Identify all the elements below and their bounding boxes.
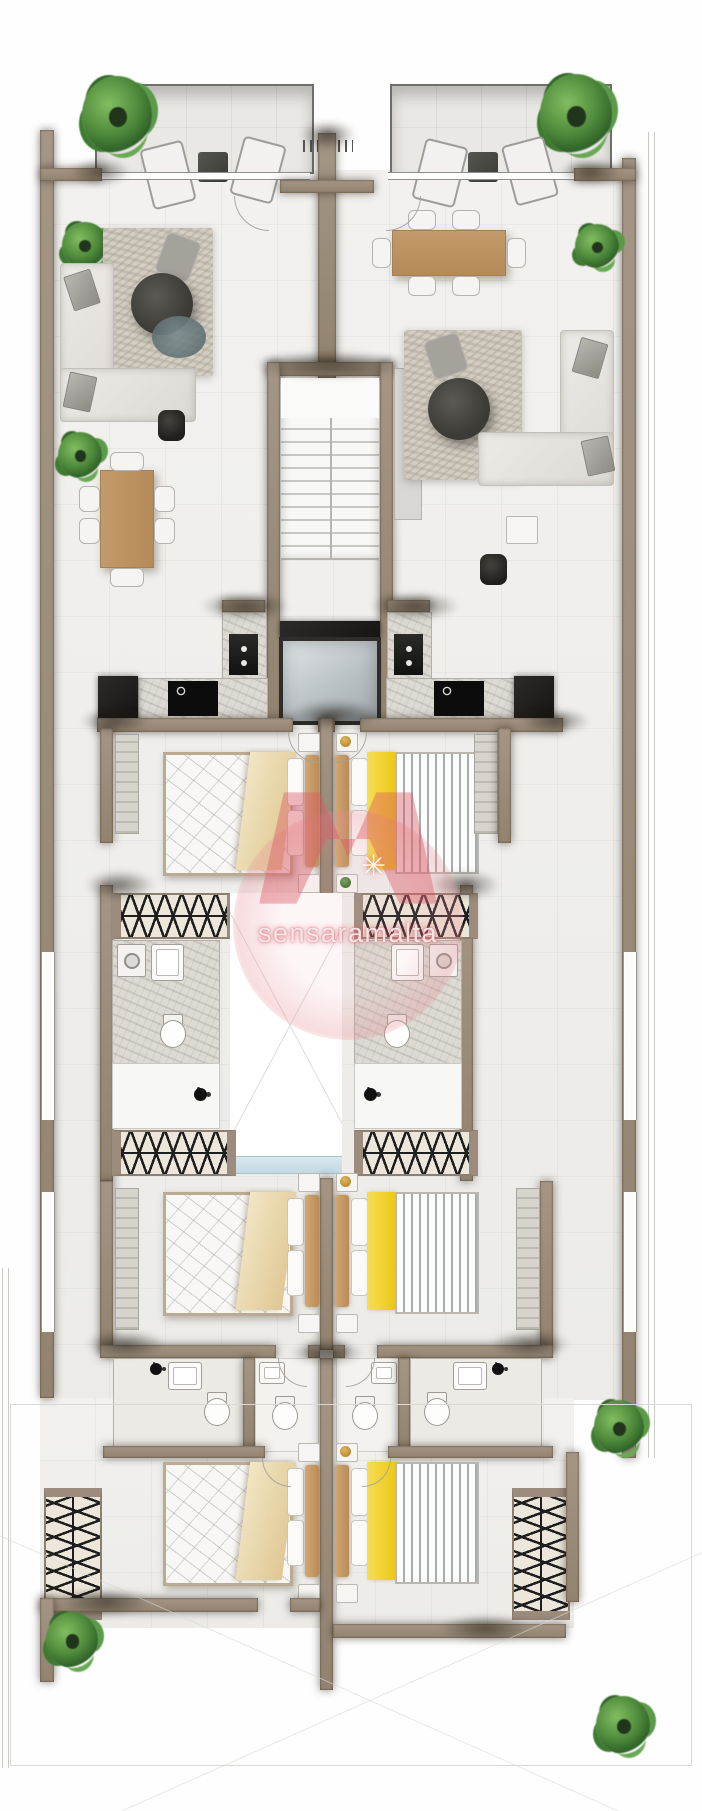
- wardrobe-rail-right-a: [354, 893, 478, 939]
- floor-lamp-icon: [480, 554, 507, 585]
- skylight-glass: [230, 1156, 342, 1174]
- toilet-bowl: [160, 1020, 186, 1048]
- kitchen-sink-icon: [229, 634, 258, 675]
- core-wall-vertical: [318, 133, 336, 378]
- core-wall-cross: [280, 180, 374, 193]
- dining-chair-icon: [110, 568, 144, 587]
- floor-plan-page: ✳ sensaramalta: [0, 0, 702, 1811]
- sliding-glass-door-right: [388, 172, 574, 180]
- toilet-icon: [384, 1014, 410, 1050]
- dining-chair-icon: [154, 486, 175, 512]
- plot-line-left: [2, 1268, 9, 1768]
- stair-wall-top: [267, 362, 393, 376]
- elevator: [279, 637, 381, 725]
- dining-chair-icon: [372, 238, 391, 268]
- stair-landing: [281, 378, 379, 418]
- bed-left-2: [163, 1192, 320, 1310]
- pillow: [287, 810, 304, 856]
- shower-head-icon: [194, 1088, 207, 1101]
- kitchen-back-wall-left: [97, 718, 293, 732]
- dining-chair-icon: [110, 452, 144, 471]
- dining-chair-icon: [452, 276, 480, 296]
- washbasin-icon: [151, 944, 184, 981]
- elevator-door-wall: [280, 621, 380, 637]
- dining-table-left: [100, 470, 154, 568]
- bedroom1-wall-right: [498, 728, 511, 843]
- window-right-2: [623, 1192, 637, 1332]
- headboard: [305, 1195, 319, 1307]
- plant-icon: [575, 224, 619, 268]
- dining-chair-icon: [79, 486, 100, 512]
- washbasin-icon: [453, 1362, 487, 1390]
- dining-chair-icon: [79, 518, 100, 544]
- pillow: [351, 1198, 368, 1246]
- wardrobe-strip-left: [115, 734, 139, 834]
- nightstand-icon: [298, 874, 320, 893]
- shower-head-icon: [492, 1363, 504, 1375]
- washing-machine-icon: [429, 944, 458, 977]
- nightstand-icon: [336, 1314, 358, 1333]
- bedroom1-wall-left: [100, 728, 113, 843]
- toilet-icon: [160, 1014, 186, 1050]
- window-left-2: [41, 1192, 55, 1332]
- bed-right-1: [334, 752, 491, 870]
- dining-chair-icon: [507, 238, 526, 268]
- fridge-icon: [98, 676, 138, 720]
- duvet-striped: [395, 752, 479, 874]
- washbasin-icon: [371, 1362, 397, 1384]
- shower-head-icon: [150, 1363, 162, 1375]
- headboard: [335, 755, 349, 867]
- accent-table-icon: [152, 316, 206, 358]
- duvet-striped: [395, 1192, 479, 1314]
- kitchen-wall-cap-left: [222, 600, 265, 612]
- outer-wall-top-left: [40, 168, 102, 181]
- side-table-icon: [506, 516, 538, 544]
- pillow: [287, 758, 304, 806]
- dining-table-right: [392, 230, 506, 276]
- kitchen-back-wall-right: [360, 718, 563, 732]
- dining-chair-icon: [452, 210, 480, 230]
- pillow: [287, 1198, 304, 1246]
- table-lamp-icon: [340, 1176, 351, 1187]
- light-well: [230, 893, 342, 1156]
- bedroom2-wall-left: [100, 1181, 113, 1351]
- plant-icon: [82, 76, 152, 154]
- toilet-bowl: [384, 1020, 410, 1048]
- blanket-yellow: [367, 1192, 395, 1310]
- bedroom-divider-2: [320, 1178, 333, 1350]
- coffee-table-icon: [428, 378, 490, 440]
- bedroom-divider-1: [320, 718, 333, 908]
- bed-left-1: [163, 752, 320, 870]
- pillow: [351, 758, 368, 806]
- fridge-icon: [514, 676, 554, 720]
- outer-wall-top-right: [574, 168, 636, 181]
- plant-icon: [58, 432, 102, 478]
- washbasin-icon: [391, 944, 424, 981]
- blanket-yellow: [367, 752, 395, 870]
- plant-icon: [62, 222, 108, 268]
- pillow: [351, 810, 368, 856]
- bedroom2-wall-right: [540, 1181, 553, 1351]
- kitchen-wall-cap-right: [387, 600, 430, 612]
- washing-machine-icon: [117, 944, 146, 977]
- wardrobe-rail-right-b: [354, 1130, 478, 1176]
- bed-right-2: [334, 1192, 491, 1310]
- bedroom2-bottom-wall-left2: [308, 1345, 320, 1358]
- dining-chair-icon: [154, 518, 175, 544]
- plot-line-right: [648, 132, 655, 1458]
- sliding-glass-door-left: [102, 172, 310, 180]
- cooktop-icon: [168, 681, 218, 716]
- cooktop-icon: [434, 681, 484, 716]
- pillow: [287, 1250, 304, 1296]
- wardrobe-strip-right: [516, 1188, 540, 1330]
- plant-icon: [540, 74, 612, 154]
- dining-chair-icon: [408, 276, 436, 296]
- window-left-1: [41, 952, 55, 1120]
- floor-lamp-icon: [158, 410, 185, 441]
- pillow: [351, 1250, 368, 1296]
- plant-sprig-icon: [340, 877, 351, 888]
- headboard: [335, 1195, 349, 1307]
- bedroom2-bottom-wall-left: [100, 1345, 276, 1358]
- washbasin-icon: [168, 1362, 202, 1390]
- nightstand-icon: [298, 1173, 320, 1192]
- headboard: [305, 755, 319, 867]
- wardrobe-rail-left-a: [112, 893, 236, 939]
- shower-head-icon: [364, 1088, 377, 1101]
- wardrobe-strip-right: [474, 734, 498, 834]
- window-right-1: [623, 952, 637, 1120]
- wardrobe-rail-left-b: [112, 1130, 236, 1176]
- wardrobe-strip-left: [115, 1188, 139, 1330]
- bedroom2-bottom-wall-right: [377, 1345, 553, 1358]
- nightstand-icon: [298, 1314, 320, 1333]
- bedroom2-bottom-wall-right2: [333, 1345, 345, 1358]
- kitchen-sink-icon: [394, 634, 423, 675]
